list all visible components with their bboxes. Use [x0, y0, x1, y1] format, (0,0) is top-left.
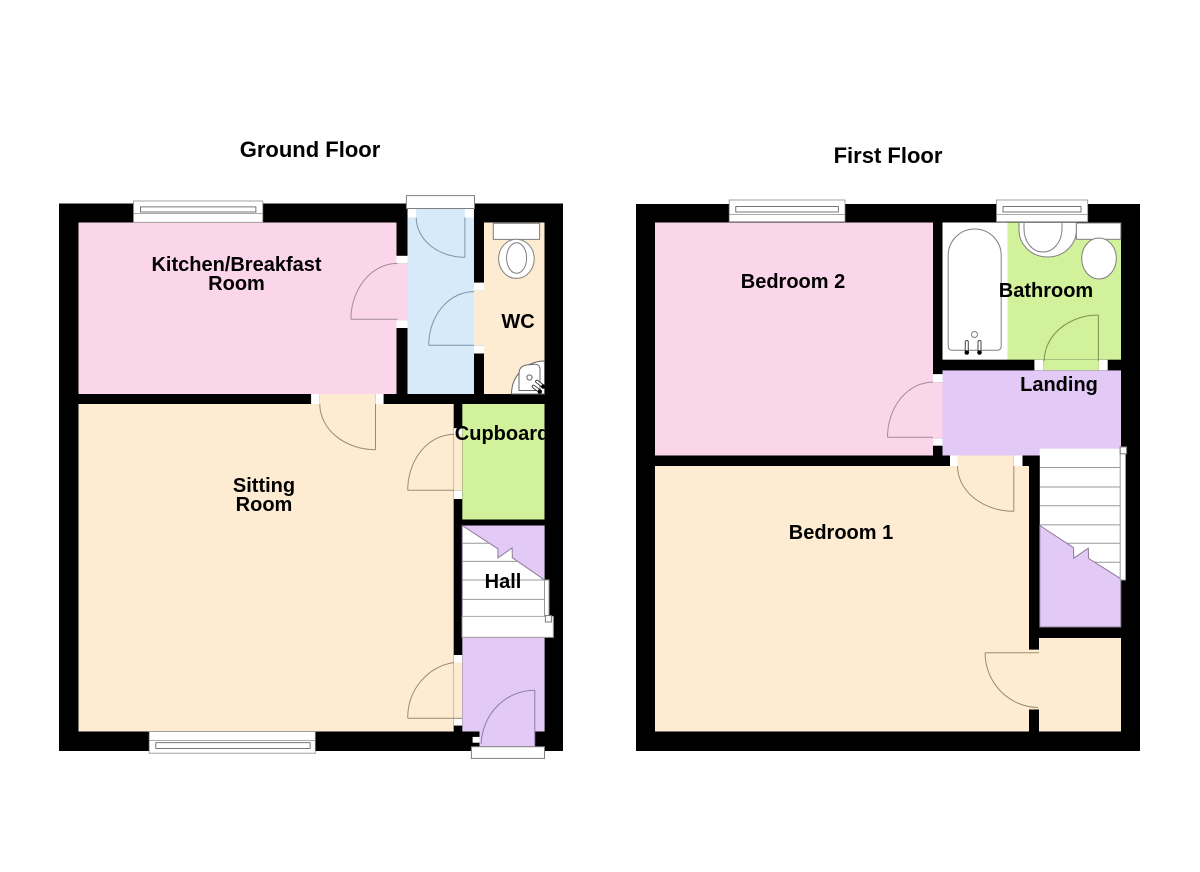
- svg-text:Bedroom 1: Bedroom 1: [789, 522, 893, 544]
- svg-text:Ground Floor: Ground Floor: [240, 137, 381, 162]
- svg-text:Room: Room: [208, 273, 265, 295]
- svg-text:First Floor: First Floor: [834, 143, 943, 168]
- svg-text:Cupboard: Cupboard: [455, 423, 549, 445]
- svg-text:Landing: Landing: [1020, 374, 1098, 396]
- svg-text:Bedroom 2: Bedroom 2: [741, 271, 845, 293]
- svg-text:Hall: Hall: [485, 571, 522, 593]
- svg-text:WC: WC: [501, 311, 534, 333]
- svg-text:Room: Room: [236, 494, 293, 516]
- svg-text:Bathroom: Bathroom: [999, 280, 1093, 302]
